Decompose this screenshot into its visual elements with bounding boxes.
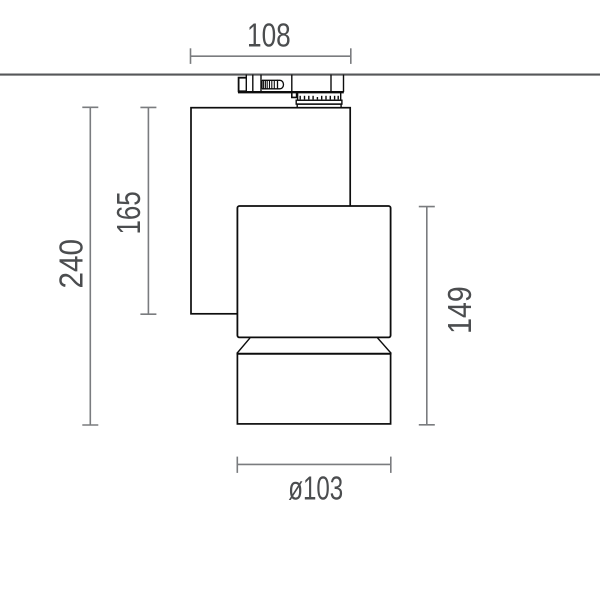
svg-text:149: 149 xyxy=(441,286,478,334)
svg-text:ø103: ø103 xyxy=(288,471,343,508)
svg-text:165: 165 xyxy=(111,191,148,234)
svg-text:108: 108 xyxy=(247,18,291,55)
svg-text:240: 240 xyxy=(53,239,90,289)
